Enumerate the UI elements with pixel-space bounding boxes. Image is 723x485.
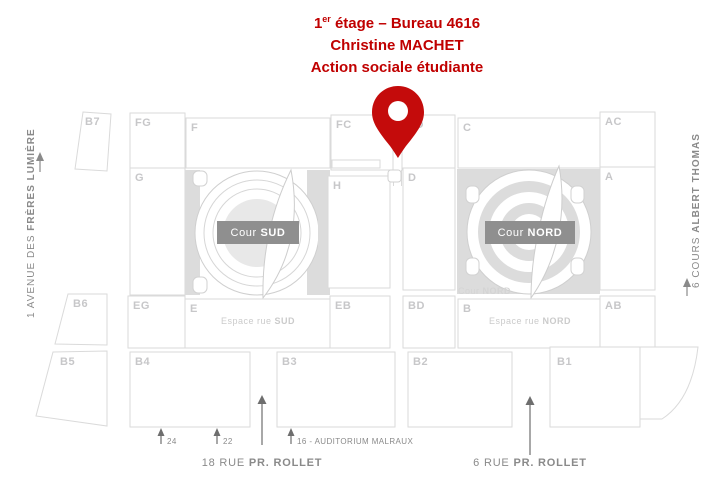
road-corner-curve	[640, 347, 698, 419]
header-line-office: 1er étage – Bureau 4616	[246, 8, 548, 35]
block-ab-label: AB	[605, 300, 622, 312]
up-arrow-icon	[214, 428, 221, 436]
block-eb-label: EB	[335, 300, 351, 312]
block-d	[403, 168, 455, 290]
entrance-22: 22	[214, 428, 233, 446]
block-bd-label: BD	[408, 300, 425, 312]
block-fg-label: FG	[135, 117, 151, 129]
cour-nord-small-label: Cour NORD	[458, 286, 511, 296]
block-b3-label: B3	[282, 356, 297, 368]
north-arrow-right-icon	[683, 278, 691, 287]
block-d-label: D	[408, 172, 416, 184]
block-b-label: B	[463, 303, 471, 315]
entrance-22-label: 22	[223, 437, 233, 446]
block-b1-label: B1	[557, 356, 572, 368]
block-eg-label: EG	[133, 300, 150, 312]
up-arrow-icon	[158, 428, 165, 436]
espace-rue-sud-label: Espace rue SUD	[221, 316, 295, 326]
block-b7-label: B7	[85, 116, 100, 128]
street-18-rue-rollet-label: 18 RUE PR. ROLLET	[202, 457, 323, 469]
block-c-label: C	[463, 122, 471, 134]
up-arrow-icon	[288, 428, 295, 436]
block-g-label: G	[135, 172, 144, 184]
street-right-label: 6 COURS ALBERT THOMAS	[691, 133, 702, 288]
block-b4-label: B4	[135, 356, 150, 368]
street-left: 1 AVENUE DES FRÈRES LUMIÈRE	[24, 128, 44, 318]
block-f	[186, 118, 330, 168]
block-g	[130, 168, 185, 295]
block-e-label: E	[190, 303, 198, 315]
street-6-rue-rollet-label: 6 RUE PR. ROLLET	[473, 457, 587, 469]
cour-nord-label: Cour NORD	[498, 227, 563, 239]
h-gray-band	[318, 176, 328, 288]
entrance-24-label: 24	[167, 437, 177, 446]
block-b5-label: B5	[60, 356, 75, 368]
up-arrow-icon	[526, 396, 535, 405]
block-ac-label: AC	[605, 116, 622, 128]
entrance-16-auditorium: 16 - AUDITORIUM MALRAUX	[288, 428, 414, 446]
header-line-service: Action sociale étudiante	[246, 57, 548, 79]
block-c	[458, 118, 600, 168]
cour-sud-label: Cour SUD	[231, 227, 286, 239]
entrance-24: 24	[158, 428, 177, 446]
block-h	[328, 176, 390, 288]
block-a-label: A	[605, 171, 613, 183]
block-a	[600, 167, 655, 290]
up-arrow-icon	[258, 395, 267, 404]
north-arrow-left-icon	[36, 152, 44, 161]
entrance-16-label: 16 - AUDITORIUM MALRAUX	[297, 437, 413, 446]
espace-rue-nord-label: Espace rue NORD	[489, 316, 571, 326]
street-left-label: 1 AVENUE DES FRÈRES LUMIÈRE	[24, 128, 37, 318]
location-header: 1er étage – Bureau 4616 Christine MACHET…	[246, 8, 548, 79]
block-b2-label: B2	[413, 356, 428, 368]
block-fc-label: FC	[336, 119, 352, 131]
block-f-label: F	[191, 122, 198, 134]
block-b6-label: B6	[73, 298, 88, 310]
street-right: 6 COURS ALBERT THOMAS	[683, 133, 702, 296]
block-h-label: H	[333, 180, 341, 192]
header-line-person: Christine MACHET	[246, 35, 548, 57]
